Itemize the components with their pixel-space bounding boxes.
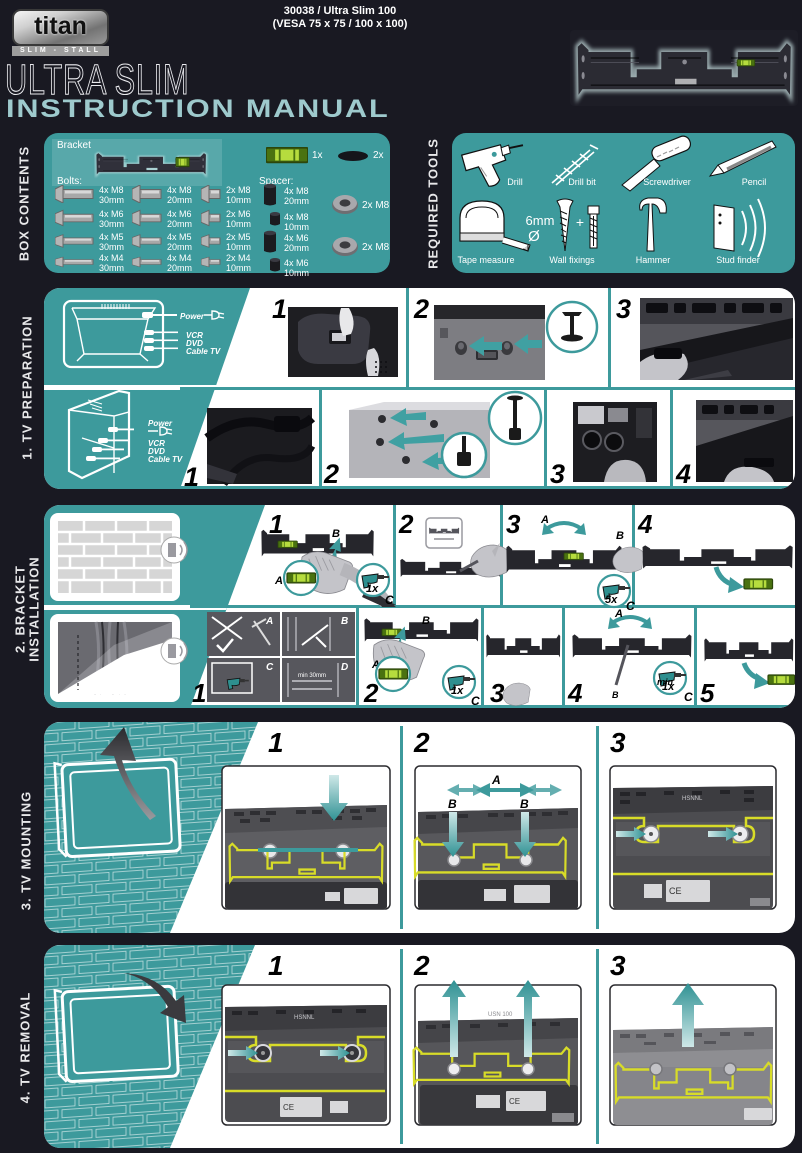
svg-text:C: C (471, 694, 480, 708)
svg-text:3: 3 (610, 727, 626, 758)
svg-text:Tape measure: Tape measure (457, 255, 514, 265)
svg-text:HSNNL: HSNNL (294, 1015, 315, 1021)
svg-text:HSNNL: HSNNL (682, 796, 703, 802)
svg-text:2: 2 (323, 459, 339, 489)
svg-text:1: 1 (272, 294, 287, 324)
svg-text:Wall fixings: Wall fixings (549, 255, 595, 265)
svg-text:Drill: Drill (507, 177, 523, 187)
svg-text:2: 2 (413, 950, 430, 981)
svg-text:4: 4 (675, 459, 691, 489)
svg-text:1x: 1x (451, 685, 464, 697)
svg-text:C: C (385, 593, 394, 607)
svg-text:A: A (540, 514, 549, 526)
svg-text:5: 5 (700, 678, 715, 708)
svg-text:CE: CE (509, 1097, 520, 1106)
svg-text:3: 3 (506, 509, 521, 539)
svg-text:Pencil: Pencil (742, 177, 767, 187)
svg-text:A: A (614, 608, 623, 620)
svg-text:C: C (684, 690, 693, 704)
svg-text:3: 3 (550, 459, 565, 489)
svg-text:Drill bit: Drill bit (568, 177, 596, 187)
svg-text:B: B (616, 530, 624, 542)
svg-text:Ø: Ø (528, 228, 540, 245)
svg-text:1: 1 (268, 727, 284, 758)
svg-text:1: 1 (268, 950, 284, 981)
svg-text:1x: 1x (366, 583, 379, 595)
svg-text:2: 2 (363, 678, 379, 708)
svg-text:2: 2 (413, 727, 430, 758)
svg-text:B: B (520, 797, 529, 811)
svg-text:1: 1 (192, 678, 206, 708)
svg-text:5x: 5x (605, 594, 618, 606)
svg-text:2: 2 (413, 294, 429, 324)
svg-text:Hammer: Hammer (636, 255, 671, 265)
svg-text:C: C (626, 599, 635, 613)
svg-text:CE: CE (283, 1103, 294, 1112)
svg-text:B: B (332, 528, 340, 540)
svg-text:1x: 1x (662, 681, 675, 693)
svg-text:4: 4 (637, 509, 653, 539)
svg-text:USN 100: USN 100 (488, 1012, 513, 1018)
svg-text:Stud finder: Stud finder (716, 255, 760, 265)
svg-text:Power: Power (148, 419, 173, 428)
svg-text:A: A (274, 575, 283, 587)
svg-text:+: + (576, 214, 584, 230)
svg-text:2: 2 (398, 509, 414, 539)
svg-text:1: 1 (184, 462, 199, 489)
svg-text:D: D (341, 662, 348, 673)
svg-text:CE: CE (669, 886, 682, 896)
svg-text:B: B (612, 690, 619, 700)
svg-text:B: B (422, 615, 430, 627)
svg-text:4: 4 (567, 678, 583, 708)
svg-text:3: 3 (610, 950, 626, 981)
svg-text:Screwdriver: Screwdriver (643, 177, 691, 187)
svg-text:Cable TV: Cable TV (186, 347, 221, 356)
svg-text:Power: Power (180, 312, 205, 321)
svg-text:min 30mm: min 30mm (298, 673, 326, 679)
svg-text:B: B (341, 616, 348, 627)
svg-text:A: A (491, 773, 501, 787)
svg-text:3: 3 (616, 294, 631, 324)
svg-text:B: B (448, 797, 457, 811)
svg-text:A: A (265, 616, 273, 627)
svg-text:6mm: 6mm (526, 213, 555, 228)
svg-text:C: C (266, 662, 274, 673)
svg-text:3: 3 (490, 678, 505, 708)
svg-text:Cable TV: Cable TV (148, 455, 183, 464)
